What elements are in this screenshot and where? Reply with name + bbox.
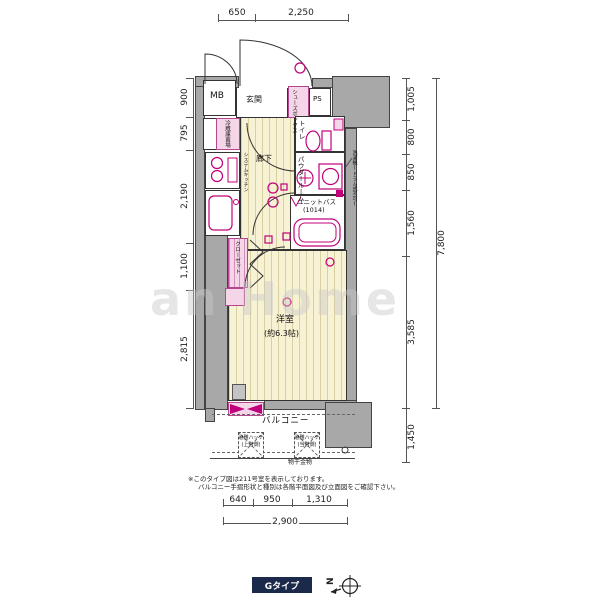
dim-tick — [402, 462, 410, 463]
window-marker-left — [230, 404, 245, 414]
unit-type-badge: Gタイプ — [252, 577, 312, 593]
dim-tick — [186, 78, 194, 79]
dim-tick — [432, 408, 440, 409]
drain-icon — [342, 447, 348, 453]
hatch2-label-line1: 避難ハッチ — [294, 436, 319, 442]
kitchen-sink-icon — [209, 196, 232, 230]
washer-pan-icon — [336, 190, 343, 197]
dim-tick — [402, 190, 410, 191]
entrance-label: 玄関 — [246, 96, 262, 105]
dim-tick — [402, 78, 410, 79]
dim-tick — [186, 243, 194, 244]
dim-left-795: 795 — [180, 123, 190, 142]
symbol-square-1 — [281, 184, 287, 190]
dim-right-850: 850 — [407, 162, 417, 181]
dim-tick — [402, 408, 410, 409]
dim-tick — [186, 290, 194, 291]
faucet-icon — [234, 200, 239, 205]
symbol-circle-5 — [326, 258, 334, 266]
drying-hardware-label: 物干金物 — [288, 460, 312, 467]
toilet-tank-icon — [322, 131, 331, 150]
stove-burner-icon-1 — [212, 158, 223, 169]
pipe-space-label: PS — [313, 96, 322, 104]
symbol-circle-2 — [268, 183, 278, 193]
window-marker-right — [247, 404, 262, 414]
note-line-2: バルコニー手摺形状と種別は各階平面図及び立面図をご確認下さい。 — [198, 481, 399, 491]
dim-bottom-950: 950 — [262, 495, 281, 505]
mb-door-arc — [205, 54, 237, 84]
dim-tick — [348, 14, 349, 22]
dim-bottom-2900: 2,900 — [271, 517, 299, 527]
hatch1-label-line2: (上階側) — [242, 443, 261, 449]
dim-tick — [347, 517, 348, 525]
toilet-shelf-icon — [334, 119, 343, 130]
dim-bottom-line — [223, 505, 347, 506]
hall-door-arc-2 — [253, 193, 295, 235]
dim-right-3585: 3,585 — [407, 318, 417, 346]
hatch1-label-line1: 避難ハッチ — [238, 436, 263, 442]
hallway-label: 廊下 — [256, 155, 272, 164]
stove-burner-icon-2 — [212, 171, 223, 182]
toilet-label: トイレ — [297, 120, 304, 150]
compass-crosshair-icon — [339, 575, 361, 597]
dim-tick — [223, 517, 224, 525]
compass-north-label: N — [326, 577, 336, 585]
dim-top-line — [218, 20, 348, 21]
dim-top-2250: 2,250 — [287, 8, 315, 18]
compass-arrowhead — [331, 588, 337, 594]
symbol-circle-1 — [295, 63, 305, 73]
dim-right-1450: 1,450 — [407, 423, 417, 451]
dim-tick — [186, 150, 194, 151]
hatch2-label-line2: (当階側) — [298, 443, 317, 449]
dim-tick — [186, 117, 194, 118]
shoes-box-label: シューズボックス — [291, 89, 297, 115]
dim-right-1005: 1,005 — [407, 85, 417, 113]
dim-tick — [292, 499, 293, 507]
balcony-label: バルコニー — [262, 417, 309, 426]
dim-left-900: 900 — [180, 87, 190, 106]
unit-bath-size-label: (1014) — [303, 207, 325, 214]
dim-right-800: 800 — [407, 127, 417, 146]
dim-tick — [402, 154, 410, 155]
floorplan-canvas: MB 玄関 シューズボックス PS 冷蔵庫置場 システムキッチン 廊下 トイレ … — [0, 0, 600, 600]
room-door-arc — [245, 247, 285, 287]
dim-left-1100: 1,100 — [180, 252, 190, 280]
western-room-size-label: (約6.3帖) — [264, 330, 299, 339]
washer-note-label: 洗濯機(ドラム式不可) — [351, 150, 357, 220]
washing-machine-drum-icon — [323, 169, 339, 185]
symbol-circle-4 — [283, 298, 291, 306]
fixtures-overlay: N — [0, 0, 600, 600]
dim-tick — [186, 408, 194, 409]
hall-door-arc-1 — [247, 123, 295, 171]
toilet-bowl-icon — [306, 131, 320, 151]
dim-left-2815: 2,815 — [180, 335, 190, 363]
dim-tick — [223, 499, 224, 507]
dim-right-1560: 1,560 — [407, 209, 417, 237]
stove-grill-icon — [228, 158, 237, 182]
system-kitchen-label: システムキッチン — [242, 152, 248, 232]
dim-tick — [255, 14, 256, 22]
symbol-square-2 — [283, 233, 290, 240]
powder-room-label: パウダールーム — [296, 156, 303, 190]
dim-tick — [402, 256, 410, 257]
dim-right-7800: 7,800 — [437, 229, 447, 257]
bathtub-inner-icon — [299, 223, 336, 242]
western-room-label: 洋室 — [276, 316, 294, 326]
dim-tick — [347, 499, 348, 507]
dim-left-2190: 2,190 — [180, 182, 190, 210]
meter-box-label: MB — [210, 92, 224, 102]
dim-tick — [253, 499, 254, 507]
closet-label: クローゼット — [234, 241, 240, 286]
dim-tick — [432, 78, 440, 79]
dim-tick — [402, 120, 410, 121]
dim-bottom-1310: 1,310 — [305, 495, 333, 505]
dim-bottom-640: 640 — [228, 495, 247, 505]
fridge-label: 冷蔵庫置場 — [224, 120, 230, 148]
dim-top-650: 650 — [227, 8, 246, 18]
symbol-square-3 — [265, 236, 272, 243]
dim-tick — [218, 14, 219, 22]
